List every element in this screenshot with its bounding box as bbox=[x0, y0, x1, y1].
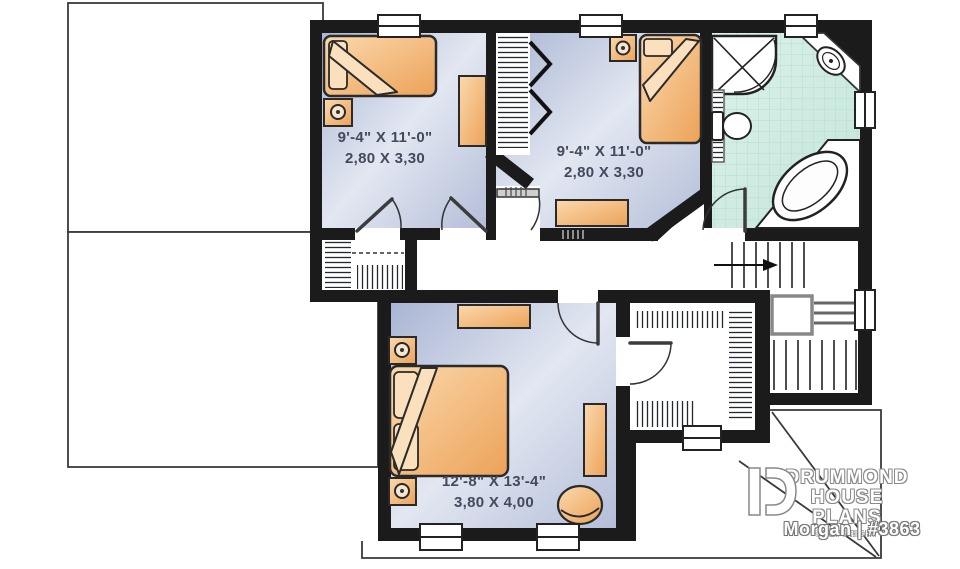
bedroom2-dimensions: 9'-4" X 11'-0" 2,80 X 3,30 bbox=[538, 141, 670, 183]
bedroom2-dim-imperial: 9'-4" X 11'-0" bbox=[538, 141, 670, 162]
closet1-door-opening bbox=[355, 228, 400, 240]
walkin-door-opening bbox=[616, 337, 630, 386]
bedroom1-dim-imperial: 9'-4" X 11'-0" bbox=[320, 127, 450, 148]
toilet-tank-icon bbox=[712, 112, 723, 140]
plan-name-label: Morgan | #3863 bbox=[762, 518, 942, 540]
pillow-icon bbox=[644, 39, 672, 56]
dresser-icon bbox=[459, 76, 486, 146]
lamp-dot bbox=[621, 46, 625, 50]
drummond-d-icon bbox=[742, 464, 798, 520]
brand-name-line1: DRUMMOND bbox=[777, 468, 917, 488]
master-dim-metric: 3,80 X 4,00 bbox=[426, 492, 562, 513]
walkin-rod-hatch-right bbox=[729, 311, 752, 421]
lamp-dot bbox=[400, 348, 404, 352]
roof-panel-upper-left bbox=[68, 3, 323, 232]
bedroom2-door-opening bbox=[496, 228, 540, 241]
lamp-dot bbox=[400, 489, 404, 493]
master-door-opening bbox=[558, 290, 598, 303]
closet1-rod-hatch-left bbox=[325, 241, 351, 288]
wall-bed2-bottom bbox=[538, 228, 658, 241]
armchair-icon bbox=[558, 486, 602, 524]
bed2-closet-rod-hatch bbox=[498, 36, 528, 148]
bathroom-door-opening bbox=[702, 228, 745, 241]
dresser-icon bbox=[458, 305, 530, 328]
stair-landing bbox=[772, 296, 812, 334]
walkin-rod-hatch-top bbox=[634, 311, 724, 328]
master-dim-imperial: 12'-8" X 13'-4" bbox=[426, 471, 562, 492]
walkin-rod-hatch-bottom bbox=[634, 401, 694, 427]
closet1-rod-hatch-bottom bbox=[357, 265, 403, 289]
bedroom2-dim-metric: 2,80 X 3,30 bbox=[538, 162, 670, 183]
bedroom1-door-opening bbox=[440, 228, 486, 240]
dresser-icon bbox=[556, 200, 628, 226]
bedroom1-dim-metric: 2,80 X 3,30 bbox=[320, 148, 450, 169]
wall-bathroom-bottom bbox=[745, 228, 866, 241]
wall-walkin-right bbox=[755, 290, 770, 443]
lamp-dot bbox=[336, 110, 340, 114]
dresser-icon bbox=[584, 404, 606, 476]
wall-bed1-bed2 bbox=[486, 27, 496, 232]
bedroom2-door-leaf bbox=[497, 189, 539, 197]
toilet-icon bbox=[723, 113, 751, 139]
bedroom1-dimensions: 9'-4" X 11'-0" 2,80 X 3,30 bbox=[320, 127, 450, 169]
wall-closet1-top-left bbox=[322, 228, 355, 240]
master-bedroom-dimensions: 12'-8" X 13'-4" 3,80 X 4,00 bbox=[426, 471, 562, 513]
floor-plan-canvas: 9'-4" X 11'-0" 2,80 X 3,30 9'-4" X 11'-0… bbox=[0, 0, 960, 569]
